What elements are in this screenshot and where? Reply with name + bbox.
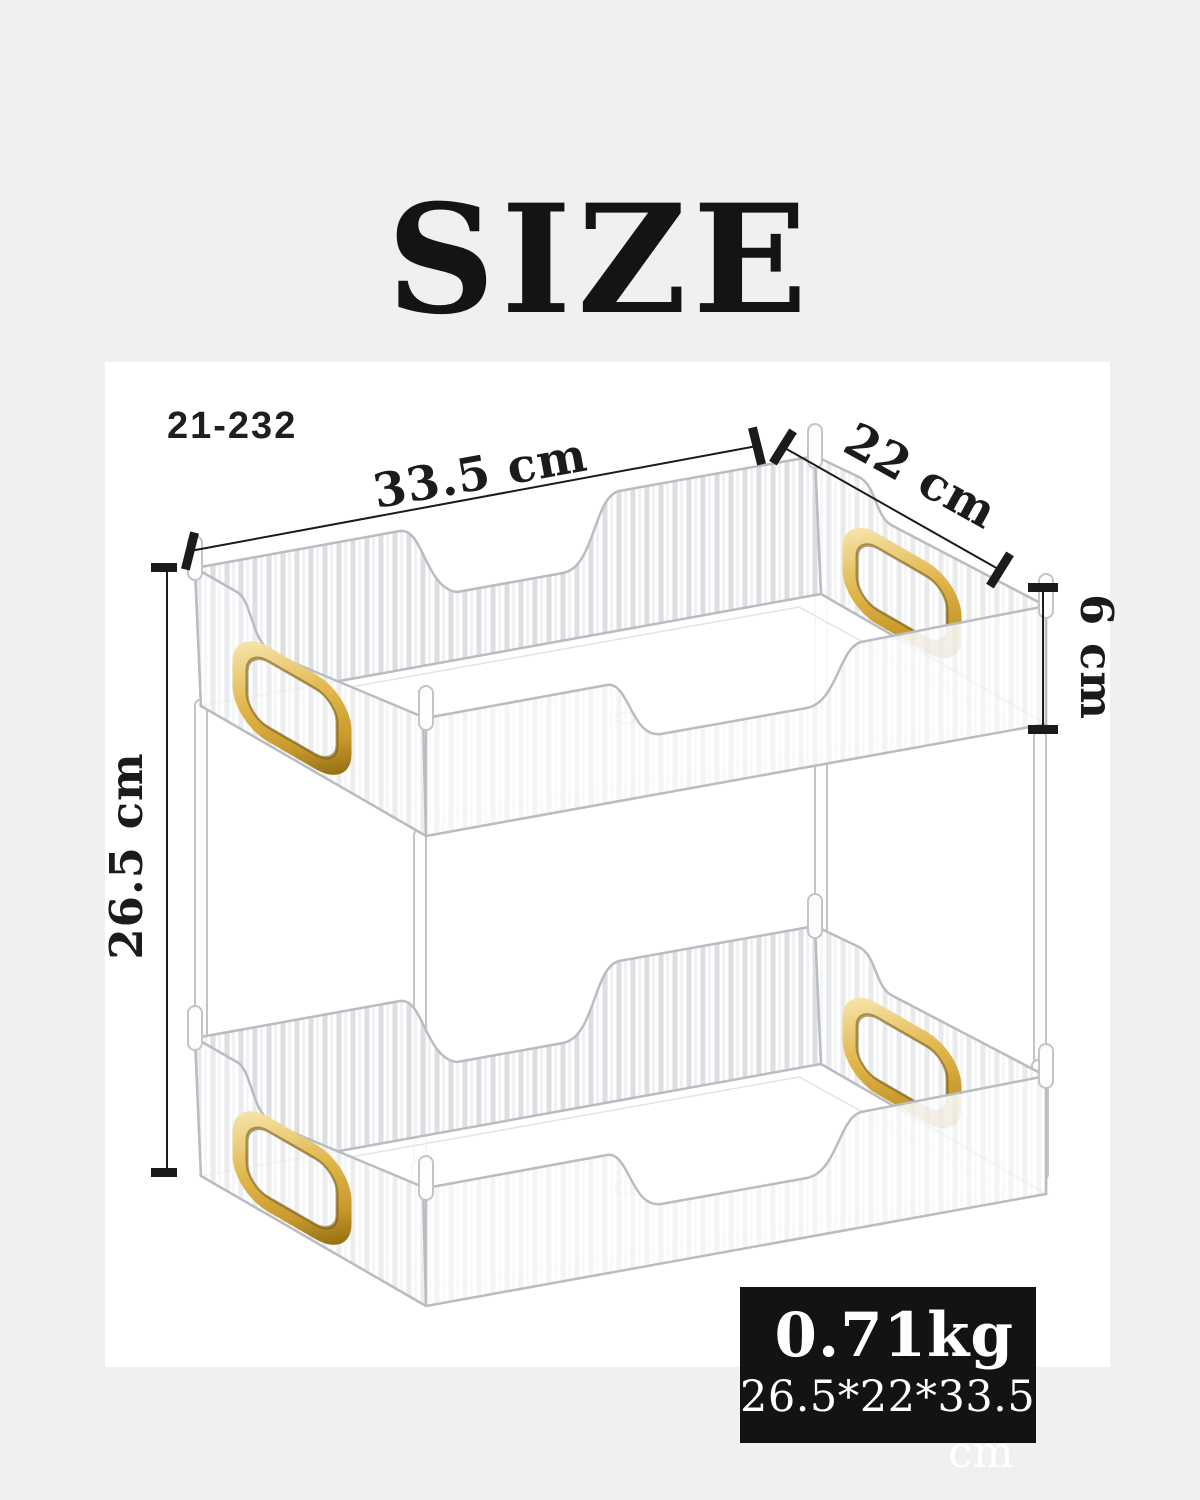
dimension-label-tier-height: 6 cm — [1070, 594, 1123, 720]
spec-weight: 0.71kg — [740, 1303, 1014, 1369]
pole-back-left — [195, 700, 207, 1056]
dimension-tier-height: 6 cm — [1028, 583, 1123, 734]
dimension-label-total-height: 26.5 cm — [100, 752, 153, 959]
model-number: 21-232 — [167, 405, 297, 447]
tray-bottom — [188, 894, 1053, 1306]
dimension-total-height: 26.5 cm — [100, 563, 177, 1177]
spec-box: 0.71kg 26.5*22*33.5 cm — [740, 1287, 1036, 1443]
spec-dimensions: 26.5*22*33.5 cm — [740, 1369, 1014, 1481]
product-illustration: 21-232 33.5 cm 22 cm 6 cm 26.5 cm — [0, 0, 1200, 1500]
dimension-label-length: 33.5 cm — [369, 428, 592, 520]
size-chart-page: SIZE — [0, 0, 1200, 1500]
